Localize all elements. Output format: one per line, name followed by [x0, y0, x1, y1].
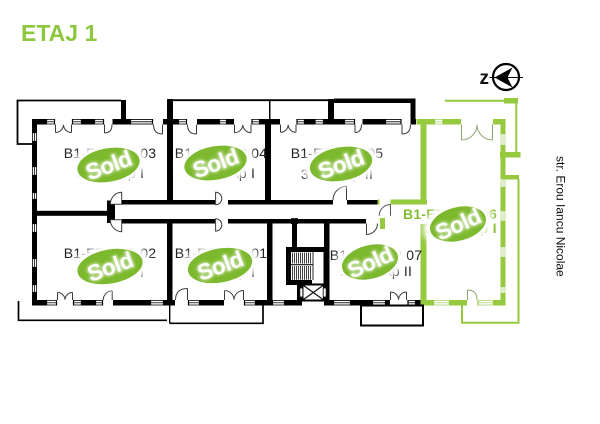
svg-text:ETAJ 1: ETAJ 1 [21, 20, 97, 46]
svg-text:str. Erou Iancu Nicolae: str. Erou Iancu Nicolae [554, 156, 568, 277]
svg-text:z: z [480, 68, 490, 89]
